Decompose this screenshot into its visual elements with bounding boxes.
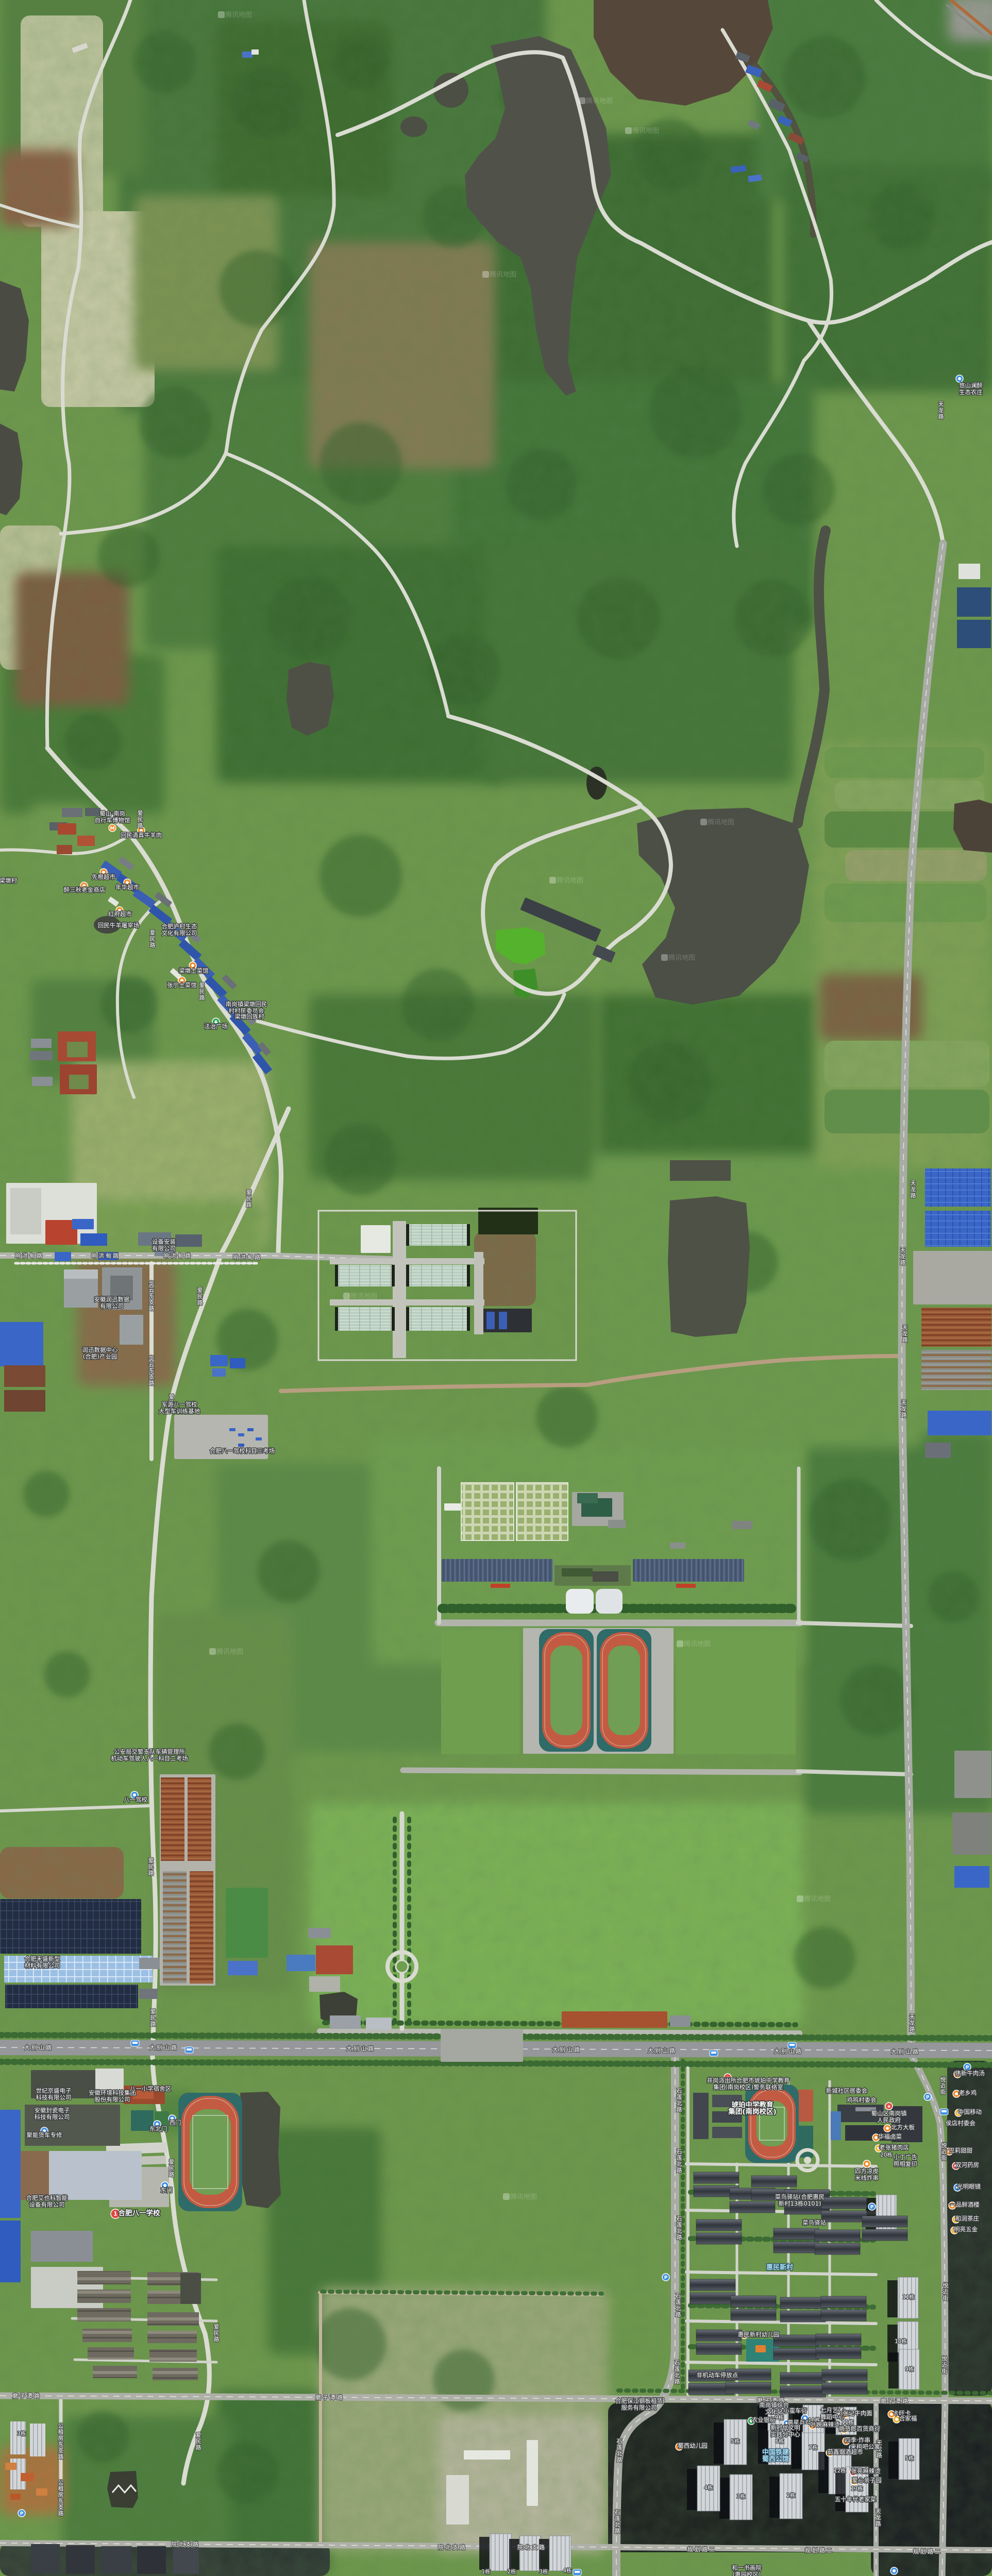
- map-label[interactable]: 大别山路: [346, 2045, 375, 2052]
- map-label[interactable]: 大别山路: [774, 2047, 803, 2055]
- poi-icon-b[interactable]: [940, 2109, 948, 2115]
- building: [366, 2018, 392, 2030]
- greenhouse: [406, 1307, 470, 1331]
- map-label[interactable]: 侯店村委会: [946, 2120, 976, 2127]
- map-label[interactable]: 4栋: [563, 2567, 572, 2574]
- watermark: 腾讯地图: [503, 2193, 537, 2201]
- map-label[interactable]: 响洪甸路: [163, 1252, 192, 1259]
- map-label[interactable]: 叶婉麻辣烫: [810, 2421, 840, 2428]
- building: [577, 1493, 598, 1503]
- map-label[interactable]: 12栋: [834, 2467, 846, 2474]
- poi-icon-d[interactable]: [956, 375, 963, 382]
- map-label[interactable]: 回民牛羊屠宰场: [98, 922, 140, 929]
- watermark: 腾讯地图: [209, 1648, 243, 1656]
- map-label[interactable]: 井岗派出所合肥市琥珀中学教育集团(南岗校区)警务联络室: [707, 2077, 790, 2091]
- map-label[interactable]: 惠民新村: [766, 2263, 793, 2272]
- map-label[interactable]: 石莲北路: [675, 2360, 680, 2385]
- building: [88, 2347, 134, 2360]
- map-label[interactable]: 2栋: [786, 2492, 796, 2499]
- map-label[interactable]: 合肥艾也科智能设备有限公司: [26, 2194, 68, 2208]
- estate-building: [816, 2334, 861, 2345]
- map-label[interactable]: 磨子潭路: [315, 2394, 344, 2401]
- building: [444, 1503, 463, 1511]
- map-label[interactable]: 华云东支路: [149, 1280, 155, 1312]
- map-label[interactable]: 9栋: [775, 2414, 784, 2421]
- building: [190, 1871, 213, 1984]
- building: [85, 808, 100, 816]
- map-label[interactable]: 规划路二: [687, 2546, 716, 2553]
- map-label[interactable]: 6栋: [775, 2438, 784, 2445]
- map-label[interactable]: 和一书画院(惠园校区): [732, 2564, 762, 2576]
- tower-shadow: [539, 2539, 549, 2570]
- estate-building: [780, 2372, 826, 2384]
- greenhouse: [406, 1265, 470, 1286]
- map-label[interactable]: 光明眼镜: [957, 2183, 981, 2190]
- building: [72, 1219, 94, 1229]
- map-label[interactable]: 3栋: [736, 2493, 746, 2500]
- building: [309, 1976, 340, 1992]
- estate-building: [815, 2230, 860, 2241]
- poi-icon-P[interactable]: P: [662, 2274, 669, 2281]
- building: [921, 1308, 991, 1347]
- poi-icon-dot: [895, 2418, 898, 2421]
- map-label[interactable]: 3栋: [539, 2568, 548, 2575]
- estate-building: [730, 2201, 775, 2213]
- building: [0, 2221, 21, 2282]
- map-label[interactable]: 合肥庐村生态文化有限公司: [162, 923, 197, 937]
- poi-icon-P[interactable]: P: [924, 2093, 931, 2100]
- map-label[interactable]: 爱民路: [150, 2008, 156, 2027]
- watermark-logo: [343, 1293, 350, 1299]
- building: [0, 1322, 43, 1366]
- estate-building: [751, 2176, 797, 2187]
- water-body: [670, 1160, 731, 1181]
- map-label[interactable]: 菜鸟驿站: [802, 2219, 826, 2226]
- map-label[interactable]: 石莲北路: [677, 2088, 682, 2113]
- map-label[interactable]: 北方大板: [891, 2124, 915, 2131]
- map-label[interactable]: 13栋: [851, 2485, 863, 2492]
- poi-icon-dot: [886, 2127, 889, 2130]
- watermark: 腾讯地图: [700, 818, 734, 826]
- map-label[interactable]: 石莲北路: [677, 2215, 682, 2241]
- map-label[interactable]: 安徽环境科技集团股份有限公司: [89, 2089, 136, 2103]
- map-label[interactable]: 公安局交警支队车辆管理所机动车驾驶人八一科目二考场: [111, 1748, 188, 1762]
- map-label[interactable]: 四季·炸串: [845, 2436, 870, 2444]
- building: [928, 1411, 991, 1435]
- building: [562, 1568, 593, 1577]
- watermark: 腾讯地图: [549, 876, 583, 885]
- track-infield: [550, 1646, 582, 1735]
- map-label[interactable]: 西门: [170, 2119, 181, 2126]
- map-label[interactable]: 军源八一驾校大型车训练基地: [159, 1401, 200, 1415]
- building: [954, 1866, 989, 1888]
- map-label[interactable]: 爱民路: [150, 929, 156, 948]
- watermark-text: 腾讯地图: [510, 2193, 537, 2201]
- estate-building: [696, 2219, 742, 2231]
- watermark: 腾讯地图: [625, 127, 659, 135]
- map-label[interactable]: 小丁广告照相复印: [894, 2154, 917, 2167]
- map-label[interactable]: 梁墩村: [0, 877, 18, 884]
- building: [120, 1315, 143, 1345]
- map-label[interactable]: 四方凉皮米线炸串: [855, 2167, 879, 2181]
- map-label[interactable]: 琥珀中学教育集团(南岗校区): [728, 2100, 776, 2116]
- estate-building: [862, 2216, 907, 2227]
- map-label[interactable]: 茹鑫烟酒超市: [828, 2448, 863, 2455]
- building: [10, 2421, 26, 2454]
- map-label[interactable]: 石莲北路: [615, 2509, 620, 2534]
- greenhouse-end: [467, 1224, 470, 1246]
- map-label[interactable]: 老张猪肉店: [879, 2144, 909, 2151]
- watermark-logo: [677, 1640, 683, 1647]
- poi-icon-d[interactable]: [863, 2160, 870, 2167]
- water-pond: [433, 73, 468, 108]
- estate-building: [696, 2233, 742, 2244]
- map-label[interactable]: 华云东支路: [149, 1354, 155, 1386]
- poi-icon-b[interactable]: [185, 2047, 193, 2053]
- building: [442, 1559, 553, 1582]
- track-infield: [608, 1646, 640, 1735]
- water-body: [668, 1196, 750, 1337]
- map-label[interactable]: 年华超市: [115, 884, 139, 891]
- map-label[interactable]: 合肥禾盛新型材料有限公司: [25, 1955, 60, 1969]
- map-label[interactable]: 菜鸟驿站(合肥惠民新村13栋0101): [775, 2193, 825, 2207]
- map-label[interactable]: 八一小学宿舍区: [130, 2085, 172, 2092]
- building: [330, 2015, 361, 2029]
- poi-icon-b[interactable]: [573, 2569, 581, 2575]
- map-label[interactable]: 11栋: [902, 2294, 915, 2300]
- building: [67, 1042, 88, 1057]
- building: [921, 1350, 991, 1390]
- tower-shadow: [887, 2280, 898, 2317]
- map-label[interactable]: 设备安装有限公司: [152, 1238, 176, 1252]
- map-label[interactable]: 蜀西幼儿园: [678, 2442, 708, 2449]
- map-label[interactable]: 石莲北路: [677, 2148, 682, 2174]
- map-label[interactable]: 东北门: [149, 2125, 167, 2132]
- map-label[interactable]: 鸡鸣村委会: [847, 2096, 877, 2104]
- map-label[interactable]: 爱民路: [148, 1857, 154, 1876]
- estate-building: [774, 2335, 819, 2346]
- map-label[interactable]: 新城社区居委会: [826, 2087, 868, 2094]
- poi-icon-P[interactable]: P: [868, 2203, 876, 2210]
- map-label[interactable]: 磨子潭路: [12, 2393, 41, 2399]
- building: [10, 2494, 21, 2500]
- map-label[interactable]: 老乡鸡: [959, 2089, 977, 2096]
- map-label[interactable]: 蜀山·南岗自行车博物馆: [95, 810, 130, 824]
- map-label[interactable]: 回民清真牛羊肉: [121, 832, 162, 839]
- map-label[interactable]: 合肥保江钢板租赁服务有限公司: [615, 2397, 663, 2411]
- map-label[interactable]: 大别山路: [24, 2044, 53, 2051]
- map-label[interactable]: 20栋: [880, 2151, 893, 2158]
- map-label[interactable]: 天龙路: [910, 2013, 915, 2032]
- building: [101, 2546, 132, 2574]
- building: [393, 1221, 406, 1358]
- poi-icon-d[interactable]: [884, 2125, 891, 2132]
- map-label[interactable]: 梁墩回族村: [234, 1013, 264, 1020]
- map-label[interactable]: 天龙路: [902, 1324, 908, 1343]
- map-label[interactable]: 五十年代老家菜: [835, 2496, 877, 2503]
- map-label[interactable]: 天龙路: [876, 2508, 881, 2527]
- map-label[interactable]: 爱心亲子园: [852, 2477, 882, 2484]
- map-label[interactable]: 一品鲜酒楼: [950, 2201, 980, 2208]
- building: [676, 1631, 796, 1754]
- map-canvas[interactable]: M♣1★★PPPPP大别山路大别山路大别山路大别山路大别山路大别山路大别山路响洪…: [0, 0, 992, 2576]
- greenhouse: [335, 1265, 395, 1286]
- map-label[interactable]: 八一驾校: [124, 1796, 147, 1803]
- estate-building: [780, 2297, 826, 2309]
- building: [5, 1985, 138, 2008]
- map-label[interactable]: 和润茶庄: [955, 2215, 979, 2222]
- water-body: [957, 587, 991, 617]
- map-label[interactable]: 小蛮车行: [783, 2407, 807, 2414]
- map-label[interactable]: 南岗镇梁墩回民村村民委员会: [226, 1001, 267, 1014]
- building: [925, 1211, 991, 1247]
- map-label[interactable]: 公租房东支路: [58, 2422, 64, 2460]
- map-label[interactable]: 醉三秋老金商店: [64, 886, 106, 893]
- building: [30, 2424, 45, 2456]
- map-label[interactable]: 响洪甸路: [233, 1253, 262, 1261]
- map-label[interactable]: 悠山澜醉生态农庄: [959, 382, 983, 396]
- poi-icon-glyph: P: [926, 2095, 930, 2100]
- map-label[interactable]: 先根超市: [92, 873, 115, 880]
- watermark-text: 腾讯地图: [632, 127, 659, 135]
- map-label[interactable]: 院北支路: [517, 2544, 546, 2551]
- building: [712, 2127, 742, 2138]
- building: [36, 2488, 47, 2496]
- watermark-logo: [661, 954, 668, 961]
- map-label[interactable]: 爱民路: [138, 810, 143, 829]
- map-label[interactable]: 石莲北路: [617, 2438, 623, 2463]
- poi-icon-P[interactable]: P: [18, 2510, 25, 2517]
- tower-shadow: [719, 2478, 730, 2519]
- map-label[interactable]: 新时代文明实践分中心: [770, 2424, 800, 2438]
- map-label[interactable]: 爱民路: [197, 1287, 203, 1306]
- greenhouse-end: [467, 1307, 470, 1331]
- building: [149, 2349, 197, 2362]
- estate-building: [690, 2293, 735, 2304]
- map-label[interactable]: 梁墩土菜馆: [179, 967, 209, 974]
- map-label[interactable]: 合家福: [899, 2415, 917, 2422]
- residential-tower: [490, 2534, 511, 2571]
- map-label[interactable]: 润迅数据中心(合肥)产业园: [82, 1346, 118, 1360]
- map-label[interactable]: 世纪京盛电子科技有限公司: [36, 2087, 72, 2101]
- map-label[interactable]: 东门: [161, 2187, 173, 2194]
- watermark: 腾讯地图: [797, 1895, 831, 1903]
- map-label[interactable]: 5栋: [905, 2455, 914, 2462]
- map-label[interactable]: 中国移动: [958, 2108, 982, 2115]
- map-label[interactable]: 5栋: [731, 2438, 740, 2445]
- poi-icon-d[interactable]: [890, 2567, 898, 2574]
- map-label[interactable]: 天龙路: [911, 1180, 916, 1199]
- residential-tower: [876, 2195, 897, 2234]
- track-infield: [190, 2109, 231, 2195]
- map-label[interactable]: 大别山路: [891, 2048, 920, 2055]
- map-label[interactable]: 公租房东支路: [58, 2479, 64, 2517]
- map-label[interactable]: 巴莉甜甜: [949, 2147, 972, 2154]
- map-label[interactable]: 2栋: [507, 2568, 516, 2575]
- map-label[interactable]: 响洪甸路: [91, 1252, 120, 1259]
- building: [77, 836, 95, 846]
- map-label[interactable]: 悦近街: [940, 2076, 946, 2095]
- poi-icon-b[interactable]: [710, 2050, 718, 2056]
- estate-building: [726, 2382, 771, 2394]
- map-label[interactable]: 安徽封瓷电子科技有限公司: [35, 2107, 70, 2121]
- map-label[interactable]: 天龙路: [901, 1399, 907, 1418]
- map-label[interactable]: 7栋: [809, 2444, 818, 2451]
- greenhouse-end: [406, 1265, 409, 1286]
- bus-glyph: [187, 2048, 192, 2050]
- building: [153, 2368, 198, 2380]
- building: [4, 1365, 45, 1387]
- building: [4, 1390, 45, 1412]
- map-label[interactable]: 院北支路: [171, 2540, 200, 2548]
- tower-shadow: [888, 2352, 899, 2388]
- tower-shadow: [888, 2442, 899, 2479]
- poi-icon-s[interactable]: ★: [885, 2103, 893, 2110]
- building: [228, 1961, 258, 1975]
- map-label[interactable]: 张宁土菜馆: [167, 981, 197, 989]
- watermark: 腾讯地图: [661, 954, 695, 962]
- map-label[interactable]: 爱民路: [214, 2324, 220, 2343]
- map-label[interactable]: 响洪甸路: [15, 1252, 44, 1259]
- greenhouse: [406, 1224, 470, 1246]
- map-label[interactable]: 规划路二: [805, 2547, 834, 2554]
- bus-glyph: [132, 2042, 138, 2044]
- building: [77, 2308, 131, 2321]
- estate-building: [731, 2296, 776, 2307]
- map-label[interactable]: 合肥八一驾校科目三考场: [210, 1447, 275, 1454]
- estate-building: [774, 2348, 819, 2360]
- map-label[interactable]: 七月艺术舞蹈中心: [820, 2406, 844, 2420]
- map-label[interactable]: 农业银行: [752, 2416, 776, 2424]
- building: [139, 1989, 158, 1999]
- greenhouse-end: [406, 1307, 409, 1331]
- estate-building: [822, 2369, 867, 2381]
- roundabout: [804, 2157, 811, 2164]
- map-label[interactable]: 大别山路: [648, 2047, 677, 2054]
- building: [693, 2093, 709, 2139]
- estate-building: [816, 2347, 861, 2359]
- watermark-logo: [218, 11, 225, 18]
- building: [77, 2290, 131, 2303]
- map-label[interactable]: 明亮五金: [954, 2226, 978, 2233]
- building: [62, 808, 82, 817]
- building: [913, 1251, 992, 1304]
- building: [64, 1269, 98, 1279]
- poi-icon-b[interactable]: [131, 2040, 139, 2046]
- estate-building: [821, 2296, 866, 2308]
- map-label[interactable]: 天龙路: [938, 401, 944, 420]
- map-label[interactable]: 法治广场: [204, 1023, 228, 1030]
- watermark-text: 腾讯地图: [225, 11, 252, 19]
- map-label[interactable]: 华福卤菜: [878, 2133, 902, 2140]
- estate-building: [731, 2309, 776, 2320]
- map-label[interactable]: 中国铁建蜀西公馆: [762, 2448, 789, 2463]
- roundabout: [396, 1960, 408, 1973]
- building: [952, 1812, 991, 1855]
- map-label[interactable]: 悦近街: [942, 2355, 948, 2375]
- watermark-text: 腾讯地图: [350, 1292, 377, 1300]
- building: [161, 1777, 184, 1861]
- watermark-text: 腾讯地图: [216, 1648, 243, 1656]
- estate-building: [821, 2310, 866, 2321]
- map-label[interactable]: 9栋: [905, 2366, 914, 2372]
- map-label[interactable]: 天龙路: [900, 1247, 906, 1266]
- map-label[interactable]: 挑货郎百货商行: [839, 2425, 881, 2432]
- map-label[interactable]: 悦近街: [941, 2142, 947, 2161]
- building: [256, 1437, 262, 1440]
- map-label[interactable]: 聚能货车专修: [27, 2131, 62, 2139]
- map-label[interactable]: 惠民新村幼儿园: [738, 2331, 780, 2338]
- map-label[interactable]: 3栋: [17, 2430, 26, 2437]
- building: [925, 1443, 951, 1458]
- building: [798, 2090, 813, 2122]
- map-label[interactable]: 大别山路: [149, 2044, 178, 2051]
- building: [478, 1208, 538, 1234]
- bus-glyph: [575, 2571, 580, 2573]
- building: [66, 2545, 95, 2574]
- building: [188, 1777, 211, 1861]
- tower-shadow: [509, 2539, 519, 2570]
- building: [308, 1928, 331, 1938]
- building: [21, 2151, 49, 2200]
- map-label[interactable]: 院北支路: [438, 2544, 467, 2551]
- water-body: [957, 620, 991, 648]
- building: [31, 1039, 52, 1048]
- estate-building: [690, 2279, 735, 2291]
- map-label[interactable]: 1栋: [481, 2568, 491, 2575]
- tower-shadow: [835, 2470, 846, 2511]
- map-label[interactable]: 石莲北路: [676, 2293, 681, 2318]
- map-label[interactable]: 悦近街: [943, 2282, 949, 2301]
- building: [831, 2111, 841, 2140]
- poi-icon-M[interactable]: M: [109, 824, 116, 832]
- map-label[interactable]: 非机动车停放点: [697, 2371, 738, 2379]
- building: [69, 1075, 89, 1089]
- watermark-text: 腾讯地图: [684, 1640, 711, 1648]
- map-label[interactable]: 大别山路: [552, 2046, 581, 2053]
- satellite-map-svg: M♣1★★PPPPP大别山路大别山路大别山路大别山路大别山路大别山路大别山路响洪…: [0, 0, 992, 2576]
- watermark-text: 腾讯地图: [490, 270, 516, 279]
- map-label[interactable]: 爱民路: [199, 982, 205, 1001]
- map-label[interactable]: 规划路二: [913, 2548, 942, 2555]
- building: [464, 2450, 510, 2460]
- watermark: 腾讯地图: [218, 11, 252, 19]
- building: [5, 2463, 16, 2470]
- building: [499, 1312, 507, 1329]
- map-label[interactable]: 张记牛肉面: [843, 2410, 872, 2417]
- building: [147, 2331, 197, 2343]
- map-label[interactable]: 爱民路: [246, 1189, 252, 1208]
- estate-building: [822, 2383, 867, 2394]
- bus-glyph: [941, 2110, 947, 2112]
- map-label[interactable]: 爱民路: [196, 2432, 201, 2451]
- estate-building: [821, 2211, 867, 2222]
- map-label[interactable]: 张亮麻辣烫: [851, 2467, 881, 2475]
- building: [0, 1899, 141, 1954]
- building: [593, 1571, 618, 1582]
- estate-building: [694, 2172, 739, 2183]
- map-label[interactable]: 爱民路: [169, 2159, 175, 2178]
- map-label[interactable]: 4栋: [704, 2484, 713, 2491]
- building: [247, 1428, 254, 1431]
- map-label[interactable]: 红府超市: [108, 910, 132, 918]
- map-label[interactable]: 合肥八一学校: [119, 2209, 160, 2217]
- map-label[interactable]: 伟新牛肉汤: [955, 2070, 985, 2077]
- map-label[interactable]: 磨子潭路: [881, 2398, 910, 2404]
- map-label[interactable]: 10栋: [895, 2338, 907, 2345]
- watermark-logo: [549, 877, 556, 884]
- map-label[interactable]: 双河药房: [955, 2161, 979, 2168]
